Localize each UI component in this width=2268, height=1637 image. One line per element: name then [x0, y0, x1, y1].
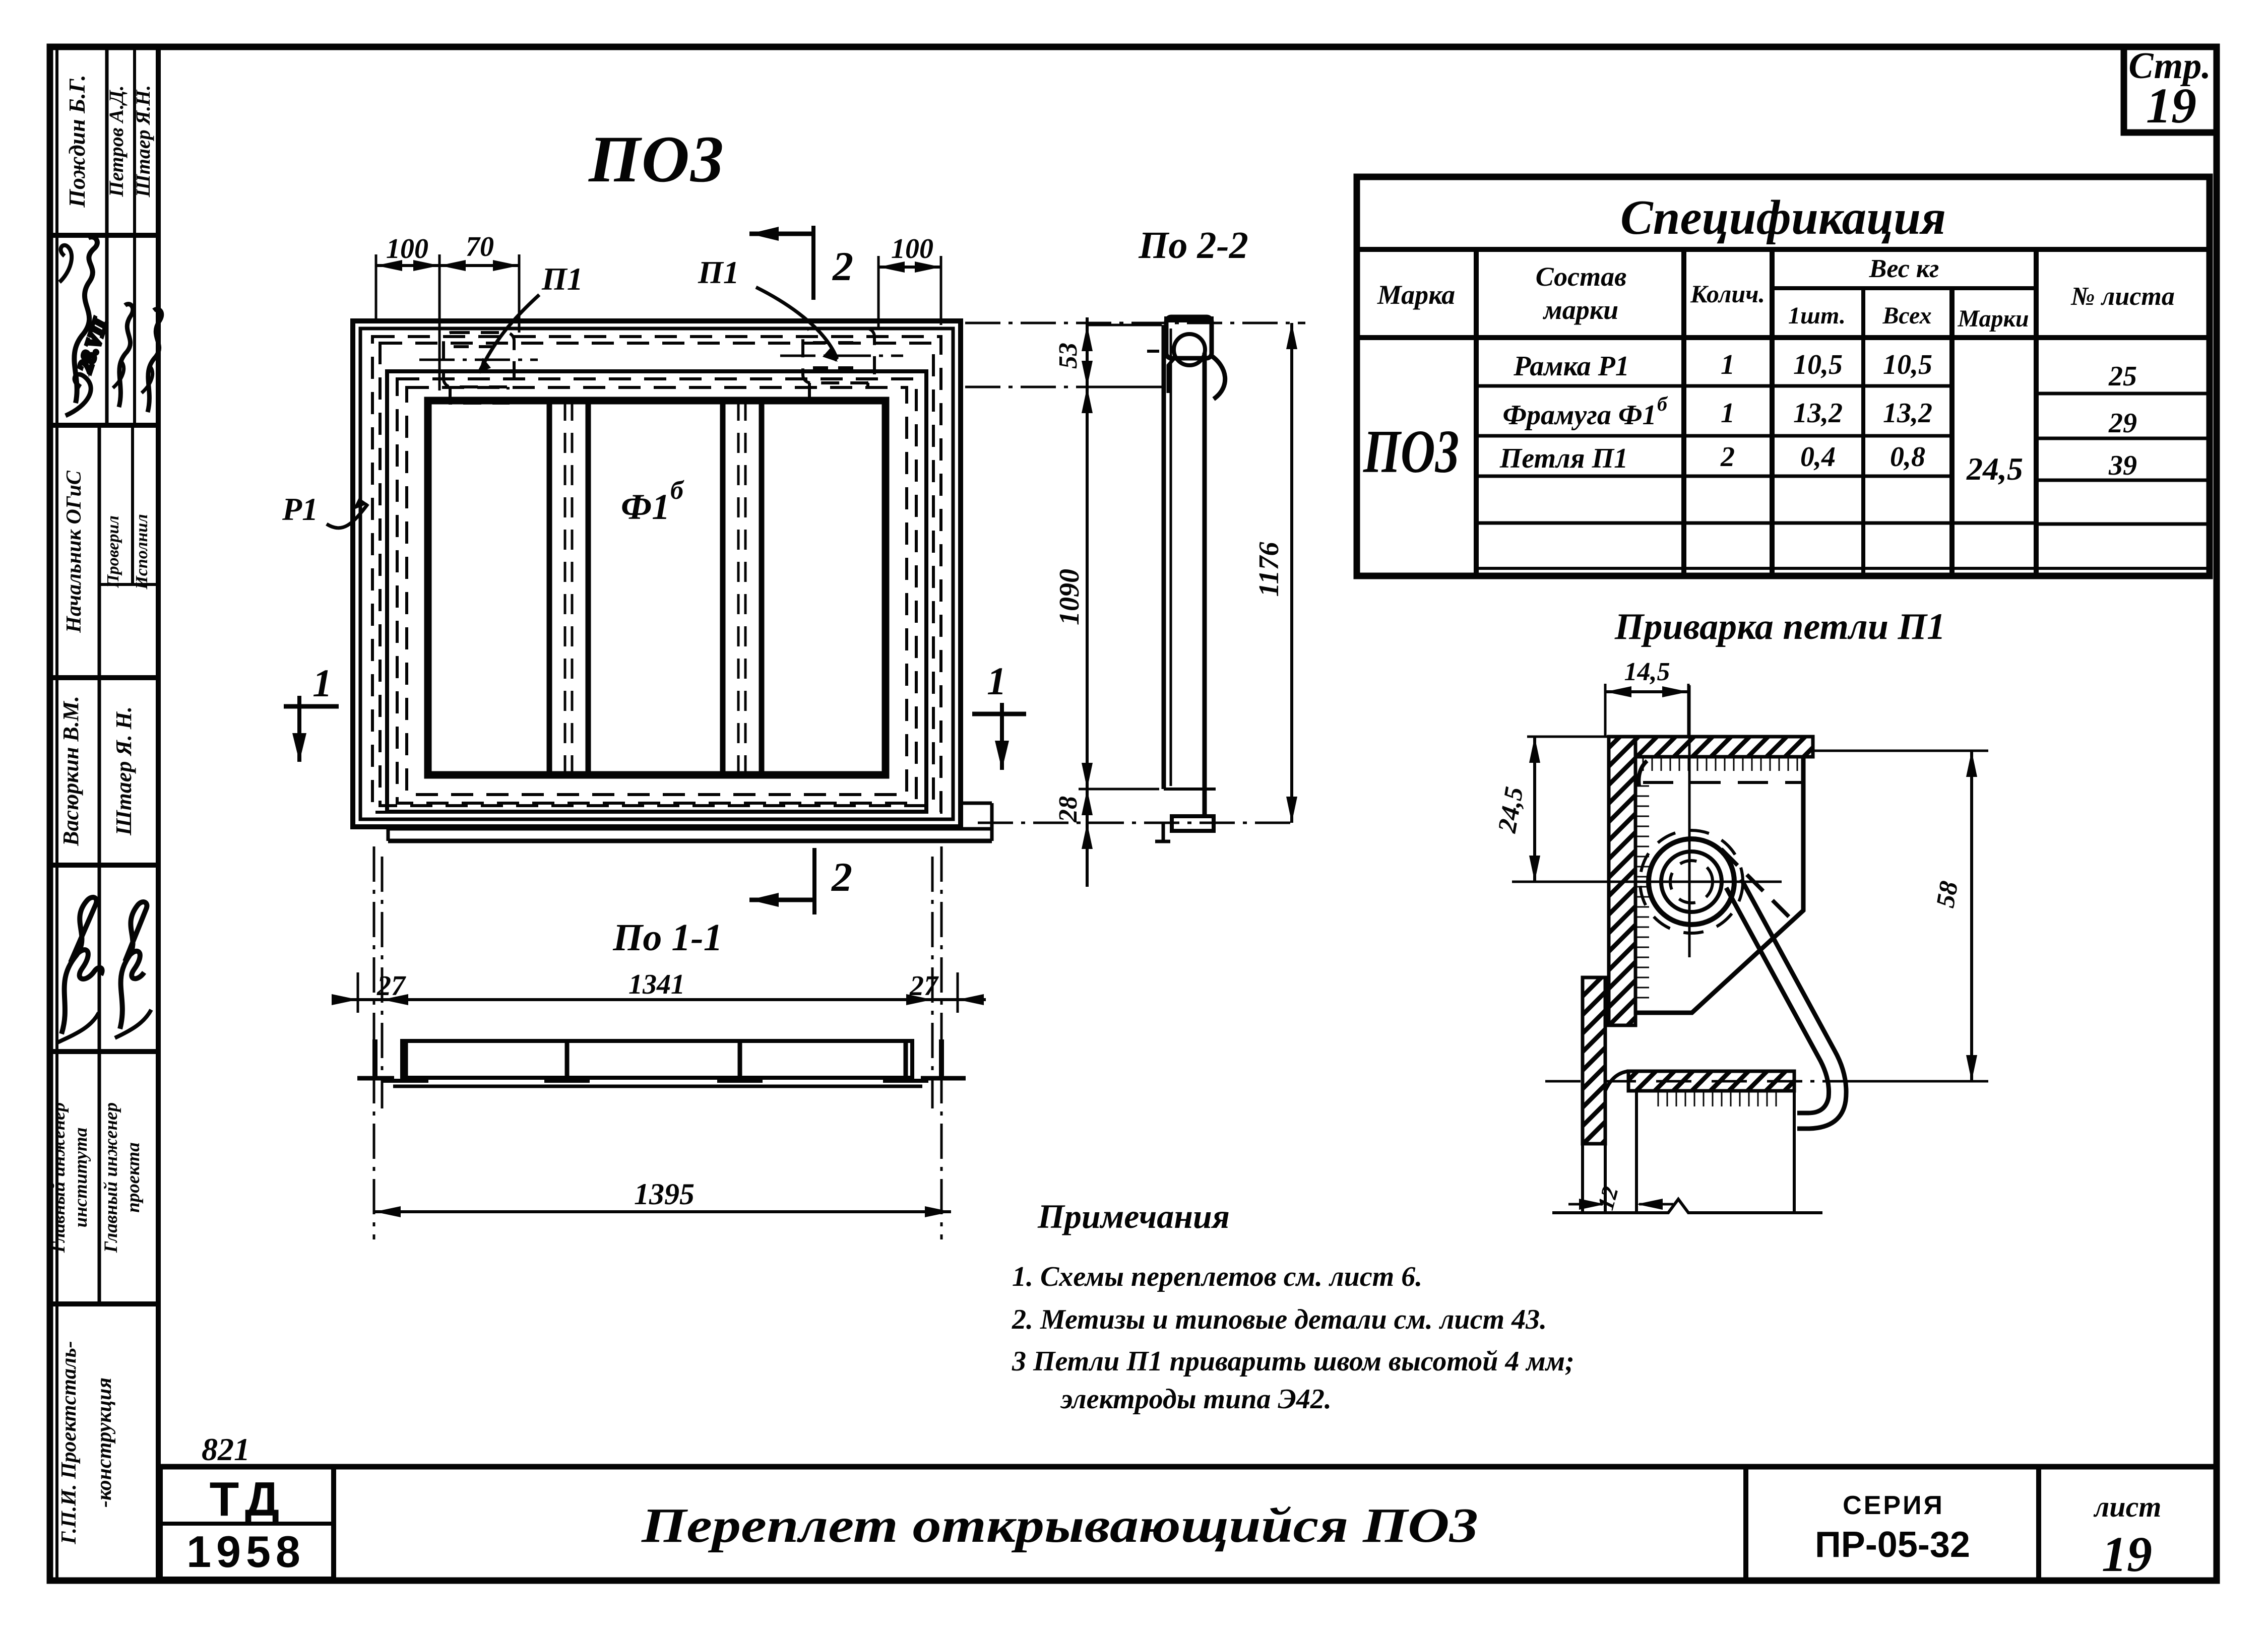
svg-text:1. Схемы переплетов см. лист: 1. Схемы переплетов см. лист 6. — [1012, 1261, 1422, 1292]
svg-text:1341: 1341 — [628, 969, 685, 1000]
svg-text:б: б — [670, 476, 684, 505]
svg-text:13,2: 13,2 — [1793, 398, 1843, 429]
svg-text:Штаер Я. Н.: Штаер Я. Н. — [111, 706, 136, 836]
svg-text:ТД: ТД — [210, 1472, 287, 1526]
svg-text:П1: П1 — [698, 254, 739, 290]
svg-text:ПО3: ПО3 — [588, 122, 725, 196]
svg-text:Исполнил: Исполнил — [133, 514, 151, 590]
svg-text:3 Петли П1 приварить швом вы: 3 Петли П1 приварить швом высотой 4 мм; — [1012, 1346, 1574, 1377]
svg-text:Главный инженер: Главный инженер — [101, 1102, 121, 1253]
svg-text:ПР-05-32: ПР-05-32 — [1815, 1525, 1970, 1565]
svg-text:39: 39 — [2108, 450, 2137, 481]
svg-text:института: института — [71, 1128, 91, 1227]
svg-text:1176: 1176 — [1253, 542, 1285, 597]
svg-text:проекта: проекта — [123, 1142, 144, 1213]
svg-text:б: б — [1657, 392, 1668, 415]
svg-text:25: 25 — [2108, 361, 2137, 392]
svg-text:-конструкция: -конструкция — [93, 1378, 116, 1508]
svg-text:53: 53 — [1054, 343, 1083, 369]
svg-text:10,5: 10,5 — [1883, 349, 1932, 380]
svg-text:Рамка Р1: Рамка Р1 — [1513, 351, 1629, 382]
svg-text:24,5: 24,5 — [1966, 451, 2023, 487]
svg-text:Г.П.И. Проектсталь-: Г.П.И. Проектсталь- — [57, 1341, 81, 1544]
svg-text:70: 70 — [466, 231, 494, 263]
svg-text:Штаер Я.Н.: Штаер Я.Н. — [132, 85, 154, 198]
svg-text:1: 1 — [987, 659, 1006, 703]
svg-text:1395: 1395 — [634, 1177, 695, 1211]
svg-text:Р1: Р1 — [282, 491, 318, 527]
svg-text:СЕРИЯ: СЕРИЯ — [1843, 1491, 1944, 1520]
svg-text:Петля П1: Петля П1 — [1499, 443, 1628, 474]
svg-text:19: 19 — [2102, 1526, 2152, 1582]
svg-text:Васюркин В.М.: Васюркин В.М. — [58, 696, 83, 846]
svg-text:По 2-2: По 2-2 — [1138, 224, 1248, 267]
svg-text:58: 58 — [1931, 879, 1964, 910]
svg-text:0,4: 0,4 — [1800, 441, 1836, 473]
svg-text:Вес кг: Вес кг — [1869, 254, 1939, 283]
svg-text:№ листа: № листа — [2070, 282, 2175, 311]
svg-text:100: 100 — [386, 233, 428, 265]
svg-text:10,5: 10,5 — [1793, 349, 1843, 380]
svg-text:Колич.: Колич. — [1690, 280, 1765, 308]
svg-text:Спецификация: Спецификация — [1620, 190, 1946, 244]
svg-text:821: 821 — [202, 1431, 250, 1467]
svg-text:29: 29 — [2108, 408, 2137, 439]
svg-text:Всех: Всех — [1882, 302, 1931, 329]
svg-text:Ф1: Ф1 — [621, 487, 670, 527]
svg-text:27: 27 — [909, 970, 939, 1002]
svg-text:Главный инженер: Главный инженер — [48, 1102, 69, 1253]
svg-text:1: 1 — [1721, 398, 1735, 429]
svg-text:По 1-1: По 1-1 — [612, 916, 722, 959]
svg-text:Примечания: Примечания — [1037, 1197, 1230, 1235]
svg-text:П1: П1 — [541, 261, 583, 297]
svg-text:2: 2 — [832, 243, 853, 289]
svg-text:Состав: Состав — [1536, 261, 1626, 292]
svg-text:14,5: 14,5 — [1624, 658, 1670, 686]
svg-text:2: 2 — [831, 854, 852, 900]
svg-text:2. Метизы и типовые детали с: 2. Метизы и типовые детали см. лист 43. — [1012, 1304, 1547, 1335]
svg-text:13,2: 13,2 — [1883, 398, 1932, 429]
svg-text:27: 27 — [376, 970, 406, 1002]
svg-text:1шт.: 1шт. — [1788, 302, 1846, 329]
svg-text:лист: лист — [2094, 1490, 2162, 1523]
svg-text:Начальник ОГиС: Начальник ОГиС — [62, 470, 86, 633]
svg-text:Пождин Б.Г.: Пождин Б.Г. — [64, 75, 90, 208]
svg-text:ПО3: ПО3 — [1363, 418, 1459, 486]
svg-text:28: 28 — [1054, 796, 1083, 823]
svg-text:0,8: 0,8 — [1890, 441, 1925, 473]
svg-text:Петров А.Д.: Петров А.Д. — [105, 85, 128, 197]
svg-text:2: 2 — [1720, 441, 1735, 473]
svg-text:19: 19 — [2146, 78, 2196, 134]
svg-text:Переплет открывающийся ПО3: Переплет открывающийся ПО3 — [641, 1498, 1478, 1553]
svg-text:Приварка петли П1: Приварка петли П1 — [1614, 606, 1945, 647]
svg-text:1090: 1090 — [1054, 569, 1085, 625]
svg-text:Проверил: Проверил — [104, 515, 122, 588]
svg-text:Марка: Марка — [1377, 280, 1455, 310]
svg-text:1958: 1958 — [186, 1527, 305, 1577]
svg-text:Фрамуга Ф1: Фрамуга Ф1 — [1502, 400, 1656, 431]
svg-text:Марки: Марки — [1957, 305, 2029, 332]
svg-text:1: 1 — [1721, 349, 1735, 380]
svg-text:электроды типа Э42.: электроды типа Э42. — [1060, 1384, 1332, 1415]
svg-text:100: 100 — [891, 233, 933, 265]
svg-text:1: 1 — [312, 661, 332, 705]
svg-text:марки: марки — [1543, 295, 1618, 325]
